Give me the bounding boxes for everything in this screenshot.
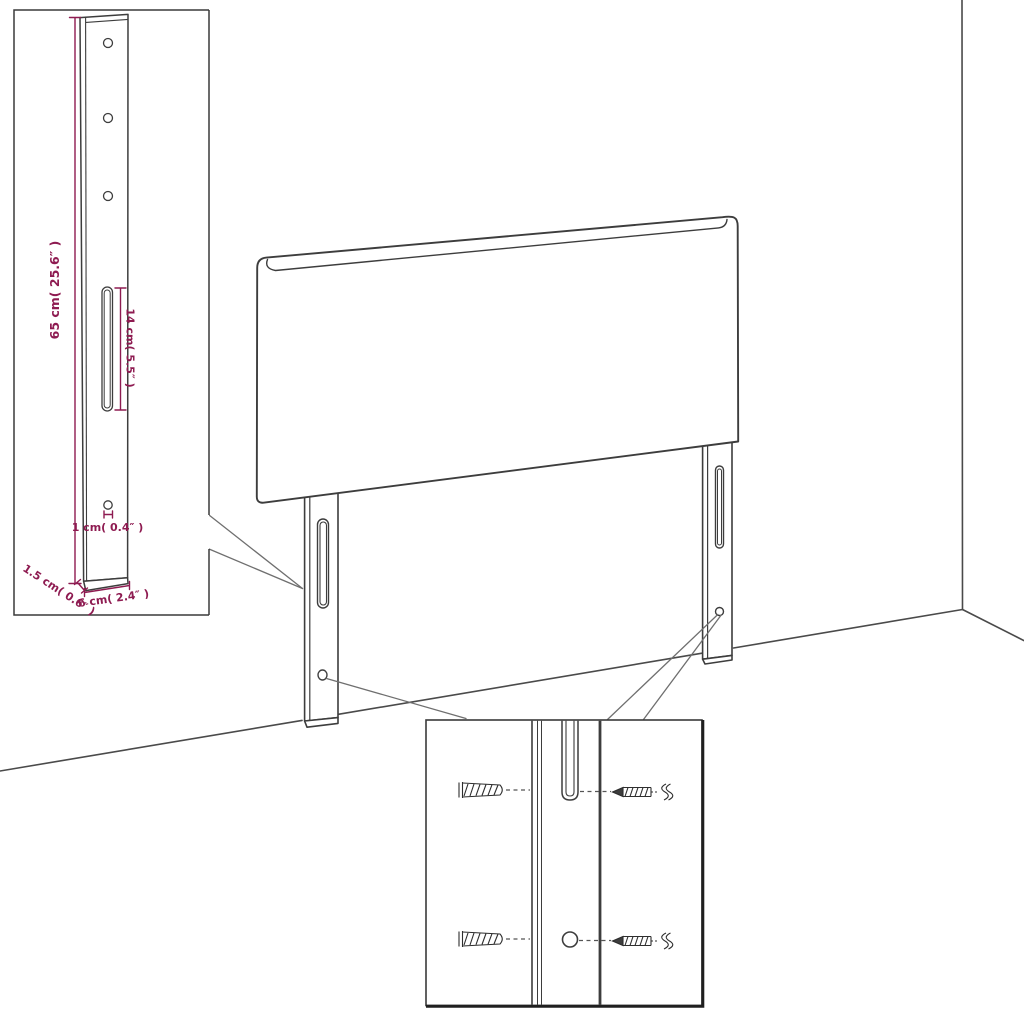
left-mounting-leg bbox=[305, 467, 338, 727]
label-leg-height: 65 cm( 25.6″ ) bbox=[47, 241, 62, 340]
label-hole-diameter: 1 cm( 0.4″ ) bbox=[72, 521, 144, 534]
callout-inset-to-left-leg-lower bbox=[209, 549, 303, 589]
label-slot-length: 14 cm( 5.5″ ) bbox=[124, 308, 137, 387]
callout-right-hole-to-box-right bbox=[644, 615, 722, 720]
hardware-inset-background bbox=[426, 720, 702, 1006]
floor-line-right bbox=[963, 610, 1024, 641]
dimension-inset: 65 cm( 25.6″ ) 14 cm( 5.5″ ) 1 cm( 0.4″ … bbox=[14, 10, 209, 618]
assembly-diagram: 65 cm( 25.6″ ) 14 cm( 5.5″ ) 1 cm( 0.4″ … bbox=[0, 0, 1024, 1024]
callout-lines bbox=[209, 515, 721, 720]
headboard-panel bbox=[257, 217, 738, 503]
right-mounting-leg bbox=[703, 427, 732, 664]
hardware-inset bbox=[426, 720, 703, 1006]
callout-inset-to-left-leg-upper bbox=[209, 515, 303, 589]
wall-corner-line bbox=[962, 0, 963, 610]
headboard-outline bbox=[257, 217, 738, 503]
diagram-svg: 65 cm( 25.6″ ) 14 cm( 5.5″ ) 1 cm( 0.4″ … bbox=[0, 0, 1024, 1024]
